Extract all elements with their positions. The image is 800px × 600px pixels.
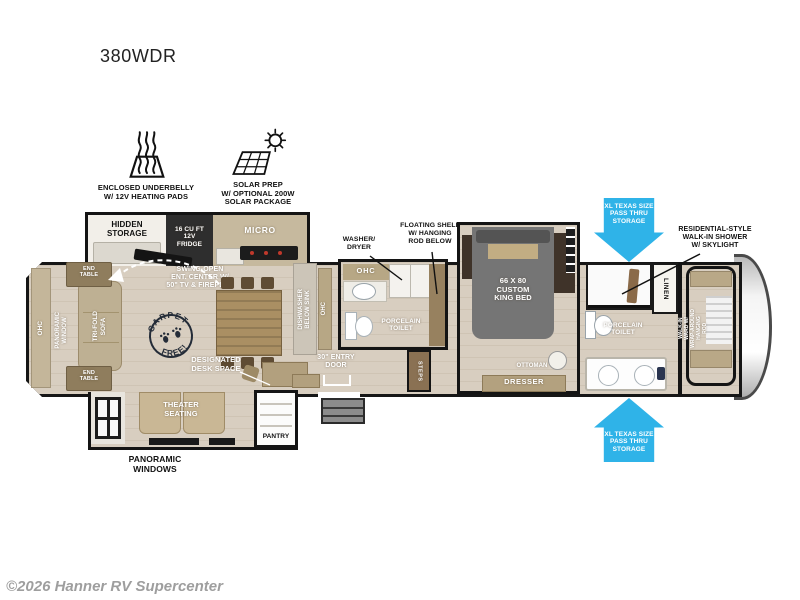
dining-chair: [221, 277, 234, 289]
heating-pads-icon: [118, 126, 176, 182]
pillows: [476, 230, 550, 243]
bedroom-window: [566, 227, 575, 273]
hidden-storage-label: HIDDEN STORAGE: [90, 220, 164, 238]
exterior-steps: [321, 398, 365, 424]
copyright: ©2026 Hanner RV Supercenter: [6, 578, 223, 595]
panoramic-windows-label: PANORAMIC WINDOWS: [100, 455, 210, 475]
floating-shelf-callout: FLOATING SHELF W/ HANGING ROD BELOW: [388, 222, 472, 245]
burner-dot: [264, 251, 268, 255]
solar-panel-icon: [228, 128, 288, 180]
pantry-shelf: [260, 414, 292, 416]
ward-label: WALK-IN WARD W/ WRAP-AROUND HANGING ROD: [680, 290, 706, 366]
step-line: [323, 407, 363, 409]
washer-dryer-callout: WASHER/ DRYER: [334, 236, 384, 252]
page-title: 380WDR: [100, 46, 177, 67]
solar-label: SOLAR PREP W/ OPTIONAL 200W SOLAR PACKAG…: [198, 181, 318, 207]
desk-pointer: [238, 370, 272, 388]
end-table-bottom-label: END TABLE: [66, 370, 112, 383]
dining-table: [216, 290, 282, 356]
pantry-label: PANTRY: [257, 433, 295, 440]
entry-cabinet: [292, 374, 320, 388]
theater-label: THEATER SEATING: [131, 401, 231, 418]
stove: [240, 246, 298, 260]
pantry-shelf: [260, 403, 292, 405]
washer-dryer-pointer: [368, 254, 408, 284]
burner-dot: [278, 251, 282, 255]
floor-window: [209, 438, 235, 445]
kitchen-ohc-label: OHC: [318, 268, 332, 350]
steps-label: STEPS: [407, 350, 431, 392]
pantry-shelf: [260, 425, 292, 427]
step-line: [323, 415, 363, 417]
mid-toilet-label: PORCELAIN TOILET: [369, 318, 433, 333]
pass-thru-arrow-bottom: XL TEXAS SIZE PASS THRU STORAGE: [594, 398, 664, 462]
blanket: [488, 244, 538, 259]
micro-label: MICRO: [213, 226, 307, 236]
vanity: [585, 357, 667, 391]
bedroom: 66 X 80 CUSTOM KING BED OTTOMAN DRESSER: [457, 222, 580, 394]
vanity-item: [657, 367, 665, 380]
wd-divider: [410, 265, 411, 297]
burner-dot: [250, 251, 254, 255]
floor-window: [149, 438, 199, 445]
pass-thru-bottom-label: XL TEXAS SIZE PASS THRU STORAGE: [594, 431, 664, 453]
vanity-sink: [598, 365, 619, 386]
entry-door-icon: [323, 375, 351, 386]
dining-chair: [241, 277, 254, 289]
rear-ohc-label: OHC: [31, 268, 51, 388]
shower-pointer: [612, 252, 704, 298]
pass-thru-top-label: XL TEXAS SIZE PASS THRU STORAGE: [594, 203, 664, 225]
paw-prints: [159, 326, 184, 344]
master-toilet-label: PORCELAIN TOILET: [592, 322, 654, 337]
entry-door-label: 30" ENTRY DOOR: [300, 354, 372, 370]
dishwasher-label: DISHWASHER BELOW SINK: [291, 263, 319, 355]
bath-sink: [352, 283, 376, 300]
dresser-label: DRESSER: [482, 378, 566, 387]
floorplan-canvas: 380WDR ENCLOSED UNDERBELLY W/ 12V HEATIN…: [0, 0, 800, 600]
side-window: [95, 397, 121, 439]
dining-chair: [261, 277, 274, 289]
pantry: PANTRY: [254, 390, 298, 448]
shower-glass: [588, 305, 650, 308]
king-bed-label: 66 X 80 CUSTOM KING BED: [474, 277, 552, 303]
shower-callout: RESIDENTIAL-STYLE WALK-IN SHOWER W/ SKYL…: [658, 226, 772, 250]
swing-arc: [104, 250, 224, 296]
floating-shelf-pointer: [428, 250, 444, 296]
ottoman-label: OTTOMAN: [502, 363, 562, 370]
underbelly-label: ENCLOSED UNDERBELLY W/ 12V HEATING PADS: [86, 184, 206, 201]
vanity-sink: [634, 365, 655, 386]
fridge-label: 16 CU FT 12V FRIDGE: [166, 226, 213, 248]
ward-shelves: [706, 296, 732, 344]
